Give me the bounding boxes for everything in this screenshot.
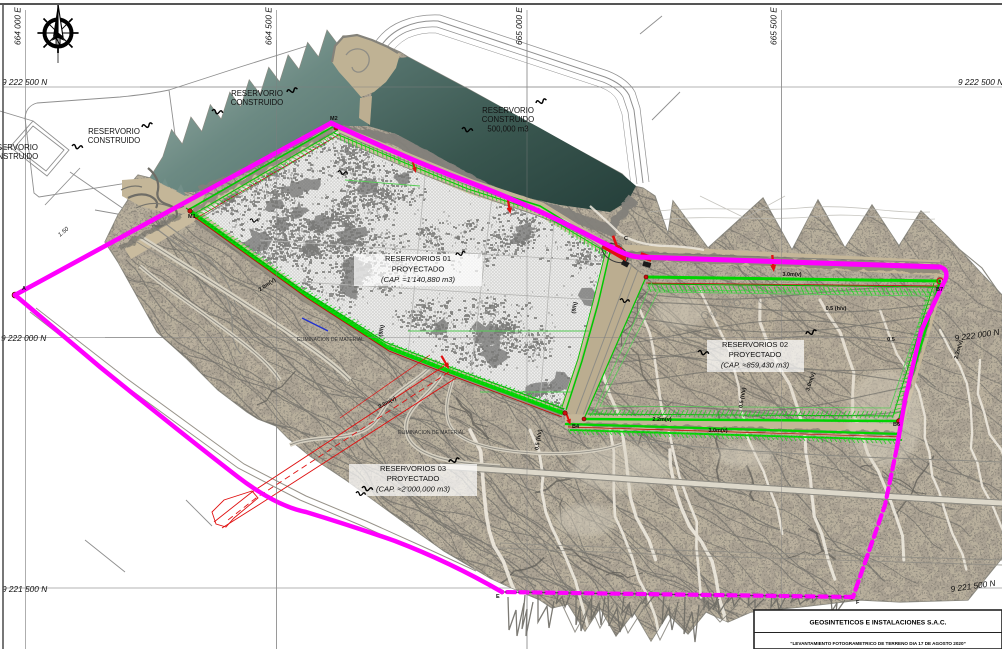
svg-text:9 222 500 N: 9 222 500 N [958,77,1002,87]
svg-text:665 500 E: 665 500 E [769,7,779,45]
svg-text:CONSTRUIDO: CONSTRUIDO [0,152,38,161]
svg-text:RESERVORIOS 03: RESERVORIOS 03 [380,464,446,473]
svg-text:B4: B4 [572,424,580,430]
svg-text:0.5: 0.5 [887,337,895,343]
svg-text:(CAP. ≈859,430 m3): (CAP. ≈859,430 m3) [721,360,790,369]
svg-text:500,000 m3: 500,000 m3 [487,124,528,133]
svg-text:N: N [55,37,61,47]
svg-text:B7: B7 [936,287,943,293]
svg-text:RESERVORIOS 01: RESERVORIOS 01 [385,254,451,263]
svg-text:2.2m(v): 2.2m(v) [652,417,671,423]
svg-text:9 222 000 N: 9 222 000 N [1,333,46,343]
svg-text:GEOSINTETICOS E INSTALACIONES: GEOSINTETICOS E INSTALACIONES S.A.C. [810,620,947,627]
svg-text:(CAP. ≈2’000,000 m3): (CAP. ≈2’000,000 m3) [376,484,451,493]
svg-text:664 500 E: 664 500 E [264,7,274,45]
svg-text:RESERVORIOS 02: RESERVORIOS 02 [722,340,788,349]
svg-text:A: A [22,286,26,292]
svg-text:E: E [496,594,500,600]
svg-text:PROYECTADO: PROYECTADO [392,264,445,273]
svg-text:CONSTRUIDO: CONSTRUIDO [88,136,140,145]
svg-text:M2: M2 [330,116,338,122]
svg-text:RESERVORIO: RESERVORIO [0,143,38,152]
svg-text:9 221 500 N: 9 221 500 N [2,584,47,594]
svg-text:ELIMINACION DE MATERIAL: ELIMINACION DE MATERIAL [398,430,465,436]
svg-text:3.0m(v): 3.0m(v) [782,272,801,278]
svg-text:M1: M1 [188,214,196,220]
svg-text:B6: B6 [893,422,900,428]
svg-text:CONSTRUIDO: CONSTRUIDO [482,115,534,124]
svg-text:C: C [624,236,628,242]
svg-text:CONSTRUIDO: CONSTRUIDO [231,98,283,107]
svg-text:664 000 E: 664 000 E [13,7,23,45]
svg-text:3.0m(v): 3.0m(v) [708,428,727,434]
svg-text:“LEVANTAMIENTO FOTOGRAMETRICO: “LEVANTAMIENTO FOTOGRAMETRICO DE TERRENO… [790,641,966,646]
svg-text:PROYECTADO: PROYECTADO [729,350,782,359]
svg-text:ELIMINACION DE MATERIAL: ELIMINACION DE MATERIAL [297,337,364,343]
svg-text:9 222 500 N: 9 222 500 N [2,77,47,87]
svg-text:PROYECTADO: PROYECTADO [387,474,440,483]
svg-text:RESERVORIO: RESERVORIO [482,106,534,115]
svg-text:665 000 E: 665 000 E [514,7,524,45]
svg-text:RESERVORIO: RESERVORIO [231,89,283,98]
svg-text:0.5 (h/v): 0.5 (h/v) [826,306,847,312]
svg-text:(CAP. ≈1’140,880 m3): (CAP. ≈1’140,880 m3) [381,275,456,284]
svg-text:RESERVORIO: RESERVORIO [88,127,140,136]
